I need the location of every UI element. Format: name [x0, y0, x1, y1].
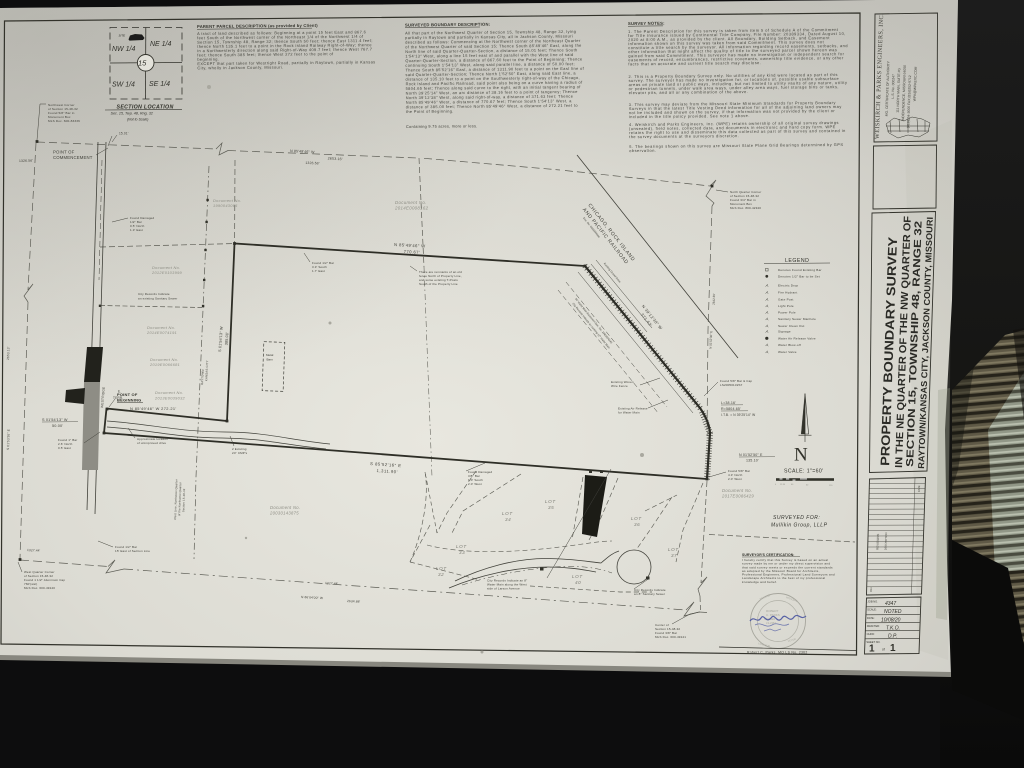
- svg-text:LS-2362: LS-2362: [766, 621, 776, 625]
- svg-text:an 8" Sanitary Sewer: an 8" Sanitary Sewer: [634, 592, 665, 596]
- svg-text:2634.88': 2634.88': [347, 599, 361, 604]
- svg-text:20030143875: 20030143875: [269, 510, 299, 515]
- svg-text:the Point of Beginning.: the Point of Beginning.: [406, 109, 454, 114]
- svg-text:MLS Doc. 600-49140: MLS Doc. 600-49140: [24, 586, 55, 590]
- svg-text:15.01': 15.01': [119, 132, 129, 136]
- svg-text:Fire Hydrant: Fire Hydrant: [778, 291, 797, 295]
- svg-text:1326.56': 1326.56': [19, 159, 33, 163]
- svg-text:24" CMP's: 24" CMP's: [232, 451, 248, 455]
- svg-text:LOT: LOT: [456, 544, 467, 549]
- svg-text:2019E0066681: 2019E0066681: [149, 362, 180, 367]
- svg-text:(Not to Scale): (Not to Scale): [127, 118, 148, 122]
- svg-text:T.K.O.: T.K.O.: [886, 625, 900, 631]
- svg-text:SCALE: 1"=60': SCALE: 1"=60': [784, 469, 824, 475]
- svg-text:40: 40: [575, 580, 581, 585]
- svg-text:1.7' East: 1.7' East: [312, 269, 325, 273]
- svg-text:2013E0039032: 2013E0039032: [154, 396, 186, 401]
- svg-text:Robert C. Parks, MO LS No. 23: Robert C. Parks, MO LS No. 2362: [747, 651, 808, 655]
- svg-text:L=38.16': L=38.16': [721, 401, 736, 405]
- svg-text:Gate Post: Gate Post: [778, 298, 794, 302]
- svg-text:an existing Sanitary Sewer: an existing Sanitary Sewer: [138, 297, 177, 301]
- svg-text:15 30: 15 30: [780, 484, 786, 486]
- svg-text:2642.65': 2642.65': [712, 293, 716, 305]
- svg-text:33: 33: [459, 550, 465, 555]
- svg-text:knowledge and belief.: knowledge and belief.: [742, 580, 777, 584]
- svg-text:SURVEY NOTES:: SURVEY NOTES:: [628, 21, 665, 26]
- svg-text:Containing 9.75 acres, more or: Containing 9.75 acres, more or less.: [406, 123, 478, 129]
- svg-text:SCALE:: SCALE:: [867, 608, 877, 612]
- svg-text:S 01'54'13" W: S 01'54'13" W: [42, 418, 68, 422]
- svg-text:LOT: LOT: [502, 511, 513, 516]
- svg-text:REV: REV: [870, 587, 873, 592]
- svg-text:770.67': 770.67': [404, 249, 421, 255]
- svg-text:COMMENCEMENT: COMMENCEMENT: [53, 155, 93, 160]
- svg-text:of: of: [882, 648, 885, 652]
- svg-text:50.00': 50.00': [52, 424, 63, 428]
- svg-text:32: 32: [438, 572, 444, 577]
- svg-text:MLS Doc. 600-83336: MLS Doc. 600-83336: [48, 119, 80, 123]
- svg-text:Wire Fence: Wire Fence: [611, 384, 628, 388]
- svg-text:SURVEYED FOR:: SURVEYED FOR:: [773, 515, 820, 521]
- svg-text:Barn: Barn: [267, 358, 274, 362]
- svg-text:S 01'53'36" E: S 01'53'36" E: [6, 429, 11, 450]
- svg-text:LOT: LOT: [668, 547, 679, 552]
- svg-text:36: 36: [634, 522, 640, 527]
- svg-text:LOT: LOT: [631, 516, 642, 521]
- svg-text:1990043085: 1990043085: [213, 203, 238, 208]
- svg-text:Document No.: Document No.: [722, 488, 752, 493]
- svg-text:N 01'52'50" E: N 01'52'50" E: [739, 453, 763, 457]
- svg-text:1.3' East: 1.3' East: [130, 228, 143, 232]
- svg-text:N: N: [794, 445, 808, 466]
- svg-text:MLS Doc. 800-42340: MLS Doc. 800-42340: [730, 206, 761, 210]
- svg-text:R=5804.65': R=5804.65': [721, 407, 741, 411]
- svg-text:Document No.: Document No.: [395, 200, 427, 205]
- svg-text:2653.13': 2653.13': [6, 346, 10, 360]
- svg-text:35: 35: [548, 505, 554, 510]
- svg-text:I.T.B. = N 39'25'14" W: I.T.B. = N 39'25'14" W: [721, 413, 755, 417]
- svg-text:2.0' West: 2.0' West: [728, 477, 742, 481]
- svg-text:Metal: Metal: [266, 353, 274, 357]
- svg-text:Section 15-48-32: Section 15-48-32: [181, 488, 186, 512]
- svg-text:JOB NO.: JOB NO.: [868, 600, 879, 604]
- svg-text:City, wholly in Jackson County: City, wholly in Jackson County, Missouri…: [197, 65, 283, 71]
- svg-text:of unimproved drive: of unimproved drive: [137, 441, 166, 445]
- svg-text:DESCRIPTION: DESCRIPTION: [883, 532, 888, 550]
- svg-text:DATE:: DATE:: [867, 616, 875, 620]
- svg-text:2014E0074191: 2014E0074191: [146, 330, 177, 335]
- svg-text:Water Air Release Valve: Water Air Release Valve: [778, 337, 816, 341]
- svg-text:City Records Indicate: City Records Indicate: [138, 292, 170, 296]
- svg-text:1327.44': 1327.44': [325, 581, 339, 586]
- svg-text:LOT: LOT: [545, 499, 556, 504]
- svg-text:Sec. 15, Twp. 48, Rng. 32: Sec. 15, Twp. 48, Rng. 32: [111, 112, 153, 116]
- svg-text:15: 15: [138, 59, 147, 68]
- svg-text:Sanitary Sewer Manhole: Sanitary Sewer Manhole: [778, 317, 816, 321]
- svg-text:D.P.: D.P.: [888, 634, 897, 640]
- svg-text:Denotes Found Existing Bar: Denotes Found Existing Bar: [778, 268, 822, 272]
- svg-text:2014E0008162: 2014E0008162: [394, 206, 429, 211]
- svg-text:NOTED: NOTED: [884, 609, 902, 615]
- svg-text:BEGINNING: BEGINNING: [117, 398, 141, 403]
- svg-text:Denotes 1/2" Bar to be Set: Denotes 1/2" Bar to be Set: [778, 275, 820, 279]
- svg-text:1326.58': 1326.58': [305, 161, 319, 166]
- svg-text:Water Blow-off: Water Blow-off: [778, 343, 801, 347]
- svg-text:MLS Doc. 600-49141: MLS Doc. 600-49141: [655, 635, 686, 639]
- svg-text:SW 1/4: SW 1/4: [112, 82, 135, 89]
- svg-text:135.10': 135.10': [746, 459, 759, 463]
- svg-text:POINT OF: POINT OF: [53, 150, 75, 155]
- svg-text:SE 1/4: SE 1/4: [149, 81, 170, 88]
- svg-text:15' East of Section Line: 15' East of Section Line: [115, 549, 150, 553]
- svg-text:DATE: DATE: [917, 485, 921, 492]
- svg-text:DRAFTER:: DRAFTER:: [867, 624, 880, 628]
- svg-text:Document No.: Document No.: [155, 390, 183, 395]
- svg-text:for Water Main: for Water Main: [618, 411, 640, 415]
- svg-text:LS20050132S7: LS20050132S7: [720, 383, 743, 387]
- svg-text:REVISIONS: REVISIONS: [875, 534, 880, 550]
- svg-text:1327.44': 1327.44': [27, 548, 41, 553]
- svg-text:2653.16': 2653.16': [328, 156, 343, 161]
- svg-text:side of Larson Avenue: side of Larson Avenue: [487, 587, 520, 591]
- svg-text:LOT: LOT: [436, 566, 447, 571]
- svg-text:N 85'49'46" W 272.21': N 85'49'46" W 272.21': [130, 406, 177, 411]
- svg-text:Document No.: Document No.: [270, 505, 300, 510]
- svg-text:4347: 4347: [885, 601, 896, 607]
- svg-text:34: 34: [505, 517, 511, 522]
- svg-text:SURVEYED BOUNDARY DESCRIPTION:: SURVEYED BOUNDARY DESCRIPTION:: [405, 22, 490, 28]
- svg-text:Water Valve: Water Valve: [778, 350, 797, 354]
- svg-text:Mullikin Group, LLLP: Mullikin Group, LLLP: [771, 523, 828, 529]
- svg-text:POINT OF: POINT OF: [117, 392, 138, 397]
- svg-text:N 01'52'30" E: N 01'52'30" E: [709, 331, 714, 349]
- svg-text:Power Pole: Power Pole: [778, 311, 796, 315]
- svg-text:2012E0103999: 2012E0103999: [151, 270, 183, 275]
- svg-text:SURVEYOR'S CERTIFICATION:: SURVEYOR'S CERTIFICATION:: [742, 553, 795, 557]
- svg-text:NE 1/4: NE 1/4: [150, 41, 172, 48]
- svg-text:Signage: Signage: [778, 330, 791, 334]
- svg-text:2.0' West: 2.0' West: [468, 482, 482, 486]
- svg-text:observation.: observation.: [629, 148, 656, 153]
- svg-text:Sewer Clean Out: Sewer Clean Out: [778, 324, 805, 328]
- svg-text:1: 1: [890, 643, 896, 654]
- svg-text:SITE: SITE: [119, 34, 127, 38]
- svg-text:0.5' East: 0.5' East: [58, 446, 71, 450]
- svg-text:37: 37: [671, 553, 677, 558]
- svg-text:the survey documents at the su: the survey documents at the surveyors di…: [629, 133, 739, 139]
- svg-text:10/08/20: 10/08/20: [881, 617, 901, 623]
- svg-text:NW 1/4: NW 1/4: [112, 46, 135, 53]
- svg-text:Light Pole: Light Pole: [778, 304, 794, 308]
- svg-text:1: 1: [869, 644, 875, 655]
- svg-text:Electric Drop: Electric Drop: [778, 284, 798, 288]
- svg-text:CHKD:: CHKD:: [867, 632, 875, 636]
- svg-text:2017E0086429: 2017E0086429: [721, 493, 754, 498]
- svg-text:South of the Property Line: South of the Property Line: [419, 282, 458, 286]
- svg-text:LOT: LOT: [572, 574, 583, 579]
